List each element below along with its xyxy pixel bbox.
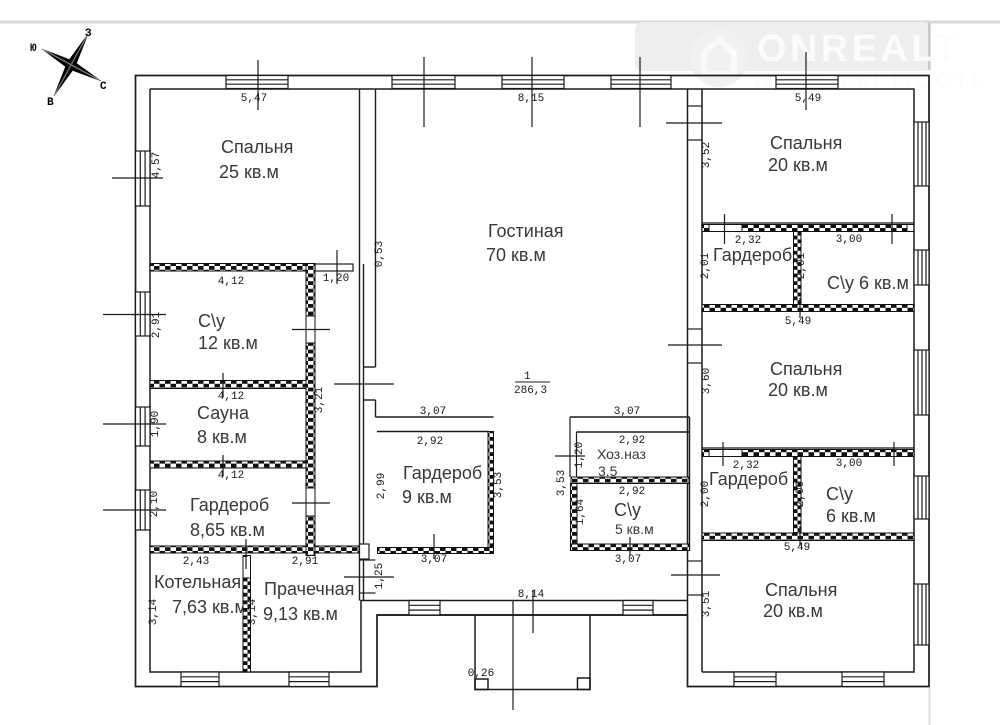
svg-text:20 кв.м: 20 кв.м — [768, 155, 828, 175]
svg-text:2,92: 2,92 — [619, 486, 645, 498]
svg-text:5,49: 5,49 — [785, 316, 811, 328]
svg-text:4,12: 4,12 — [218, 276, 244, 288]
svg-text:3,00: 3,00 — [836, 234, 862, 246]
svg-text:2,92: 2,92 — [417, 436, 443, 448]
svg-text:7,63 кв.м: 7,63 кв.м — [172, 597, 247, 617]
svg-text:5,49: 5,49 — [795, 93, 821, 105]
svg-text:8,15: 8,15 — [518, 93, 544, 105]
svg-text:2,01: 2,01 — [700, 252, 712, 279]
svg-text:Спальня: Спальня — [770, 133, 842, 153]
svg-text:3,21: 3,21 — [314, 386, 326, 413]
svg-text:0,53: 0,53 — [374, 241, 386, 267]
svg-text:4,12: 4,12 — [218, 391, 244, 403]
svg-text:20 кв.м: 20 кв.м — [768, 380, 828, 400]
svg-text:С\у: С\у — [198, 311, 225, 331]
svg-text:В: В — [47, 97, 54, 109]
svg-text:Гардероб: Гардероб — [403, 463, 482, 483]
svg-text:9,13 кв.м: 9,13 кв.м — [263, 604, 338, 624]
svg-text:2,43: 2,43 — [183, 556, 209, 568]
svg-text:2,99: 2,99 — [376, 473, 388, 499]
svg-text:12 кв.м: 12 кв.м — [198, 333, 258, 353]
svg-text:Ю: Ю — [30, 43, 37, 55]
svg-text:8 кв.м: 8 кв.м — [197, 427, 247, 447]
svg-text:2,10: 2,10 — [149, 491, 161, 517]
svg-text:3,53: 3,53 — [493, 472, 505, 498]
svg-text:2,32: 2,32 — [735, 235, 761, 247]
svg-text:Спальня: Спальня — [765, 580, 837, 600]
svg-text:3,07: 3,07 — [421, 554, 447, 566]
svg-text:3,51: 3,51 — [701, 590, 713, 617]
svg-text:2,91: 2,91 — [151, 311, 163, 338]
svg-text:Гардероб: Гардероб — [709, 469, 788, 489]
svg-text:Сауна: Сауна — [197, 403, 250, 423]
svg-text:70 кв.м: 70 кв.м — [486, 245, 546, 265]
svg-text:Гардероб: Гардероб — [713, 245, 792, 265]
svg-text:2,91: 2,91 — [292, 556, 319, 568]
svg-text:3,07: 3,07 — [420, 406, 446, 418]
svg-text:Гардероб: Гардероб — [190, 495, 269, 515]
svg-text:25 кв.м: 25 кв.м — [219, 162, 279, 182]
svg-text:С\у 6 кв.м: С\у 6 кв.м — [827, 273, 909, 293]
svg-text:3,52: 3,52 — [701, 142, 713, 168]
svg-text:3,60: 3,60 — [701, 368, 713, 394]
svg-text:Гостиная: Гостиная — [488, 221, 564, 241]
svg-text:1,20: 1,20 — [323, 273, 349, 285]
svg-text:5 кв.м: 5 кв.м — [615, 521, 654, 537]
svg-text:3,07: 3,07 — [615, 554, 641, 566]
svg-text:4,57: 4,57 — [151, 152, 163, 178]
svg-text:С\у: С\у — [614, 500, 641, 520]
svg-text:Спальня: Спальня — [770, 359, 842, 379]
svg-text:3,5: 3,5 — [598, 463, 618, 479]
svg-text:286,3: 286,3 — [514, 385, 547, 397]
svg-text:ONREALT: ONREALT — [757, 28, 962, 70]
svg-text:2,00: 2,00 — [700, 481, 712, 507]
svg-text:3,07: 3,07 — [614, 406, 640, 418]
svg-text:8,14: 8,14 — [518, 589, 545, 601]
svg-text:20 кв.м: 20 кв.м — [763, 601, 823, 621]
svg-text:6 кв.м: 6 кв.м — [826, 506, 876, 526]
svg-text:2,92: 2,92 — [619, 435, 645, 447]
svg-text:Хоз.наз: Хоз.наз — [597, 446, 646, 462]
svg-text:Спальня: Спальня — [221, 137, 293, 157]
svg-text:С: С — [100, 81, 107, 93]
svg-text:Котельная: Котельная — [154, 572, 241, 592]
svg-text:С\у: С\у — [826, 484, 853, 504]
svg-text:1,64: 1,64 — [575, 498, 587, 525]
svg-text:1: 1 — [524, 371, 531, 383]
svg-text:8,65 кв.м: 8,65 кв.м — [190, 520, 265, 540]
svg-text:2,32: 2,32 — [733, 460, 759, 472]
svg-text:2,01: 2,01 — [796, 252, 808, 279]
svg-text:9 кв.м: 9 кв.м — [402, 487, 452, 507]
svg-text:1,90: 1,90 — [150, 411, 162, 437]
svg-text:1,20: 1,20 — [574, 442, 586, 468]
svg-text:3,53: 3,53 — [556, 470, 568, 496]
svg-text:4,12: 4,12 — [218, 470, 244, 482]
svg-text:0,26: 0,26 — [468, 668, 494, 680]
svg-text:5,47: 5,47 — [241, 93, 267, 105]
svg-text:1,25: 1,25 — [374, 563, 386, 589]
svg-text:3,00: 3,00 — [836, 458, 862, 470]
svg-text:Прачечная: Прачечная — [264, 579, 354, 599]
svg-text:З: З — [85, 28, 92, 40]
svg-text:2,00: 2,00 — [795, 481, 807, 507]
svg-text:3,14: 3,14 — [148, 598, 160, 625]
svg-text:3,14: 3,14 — [247, 598, 259, 625]
svg-text:5,49: 5,49 — [784, 542, 810, 554]
